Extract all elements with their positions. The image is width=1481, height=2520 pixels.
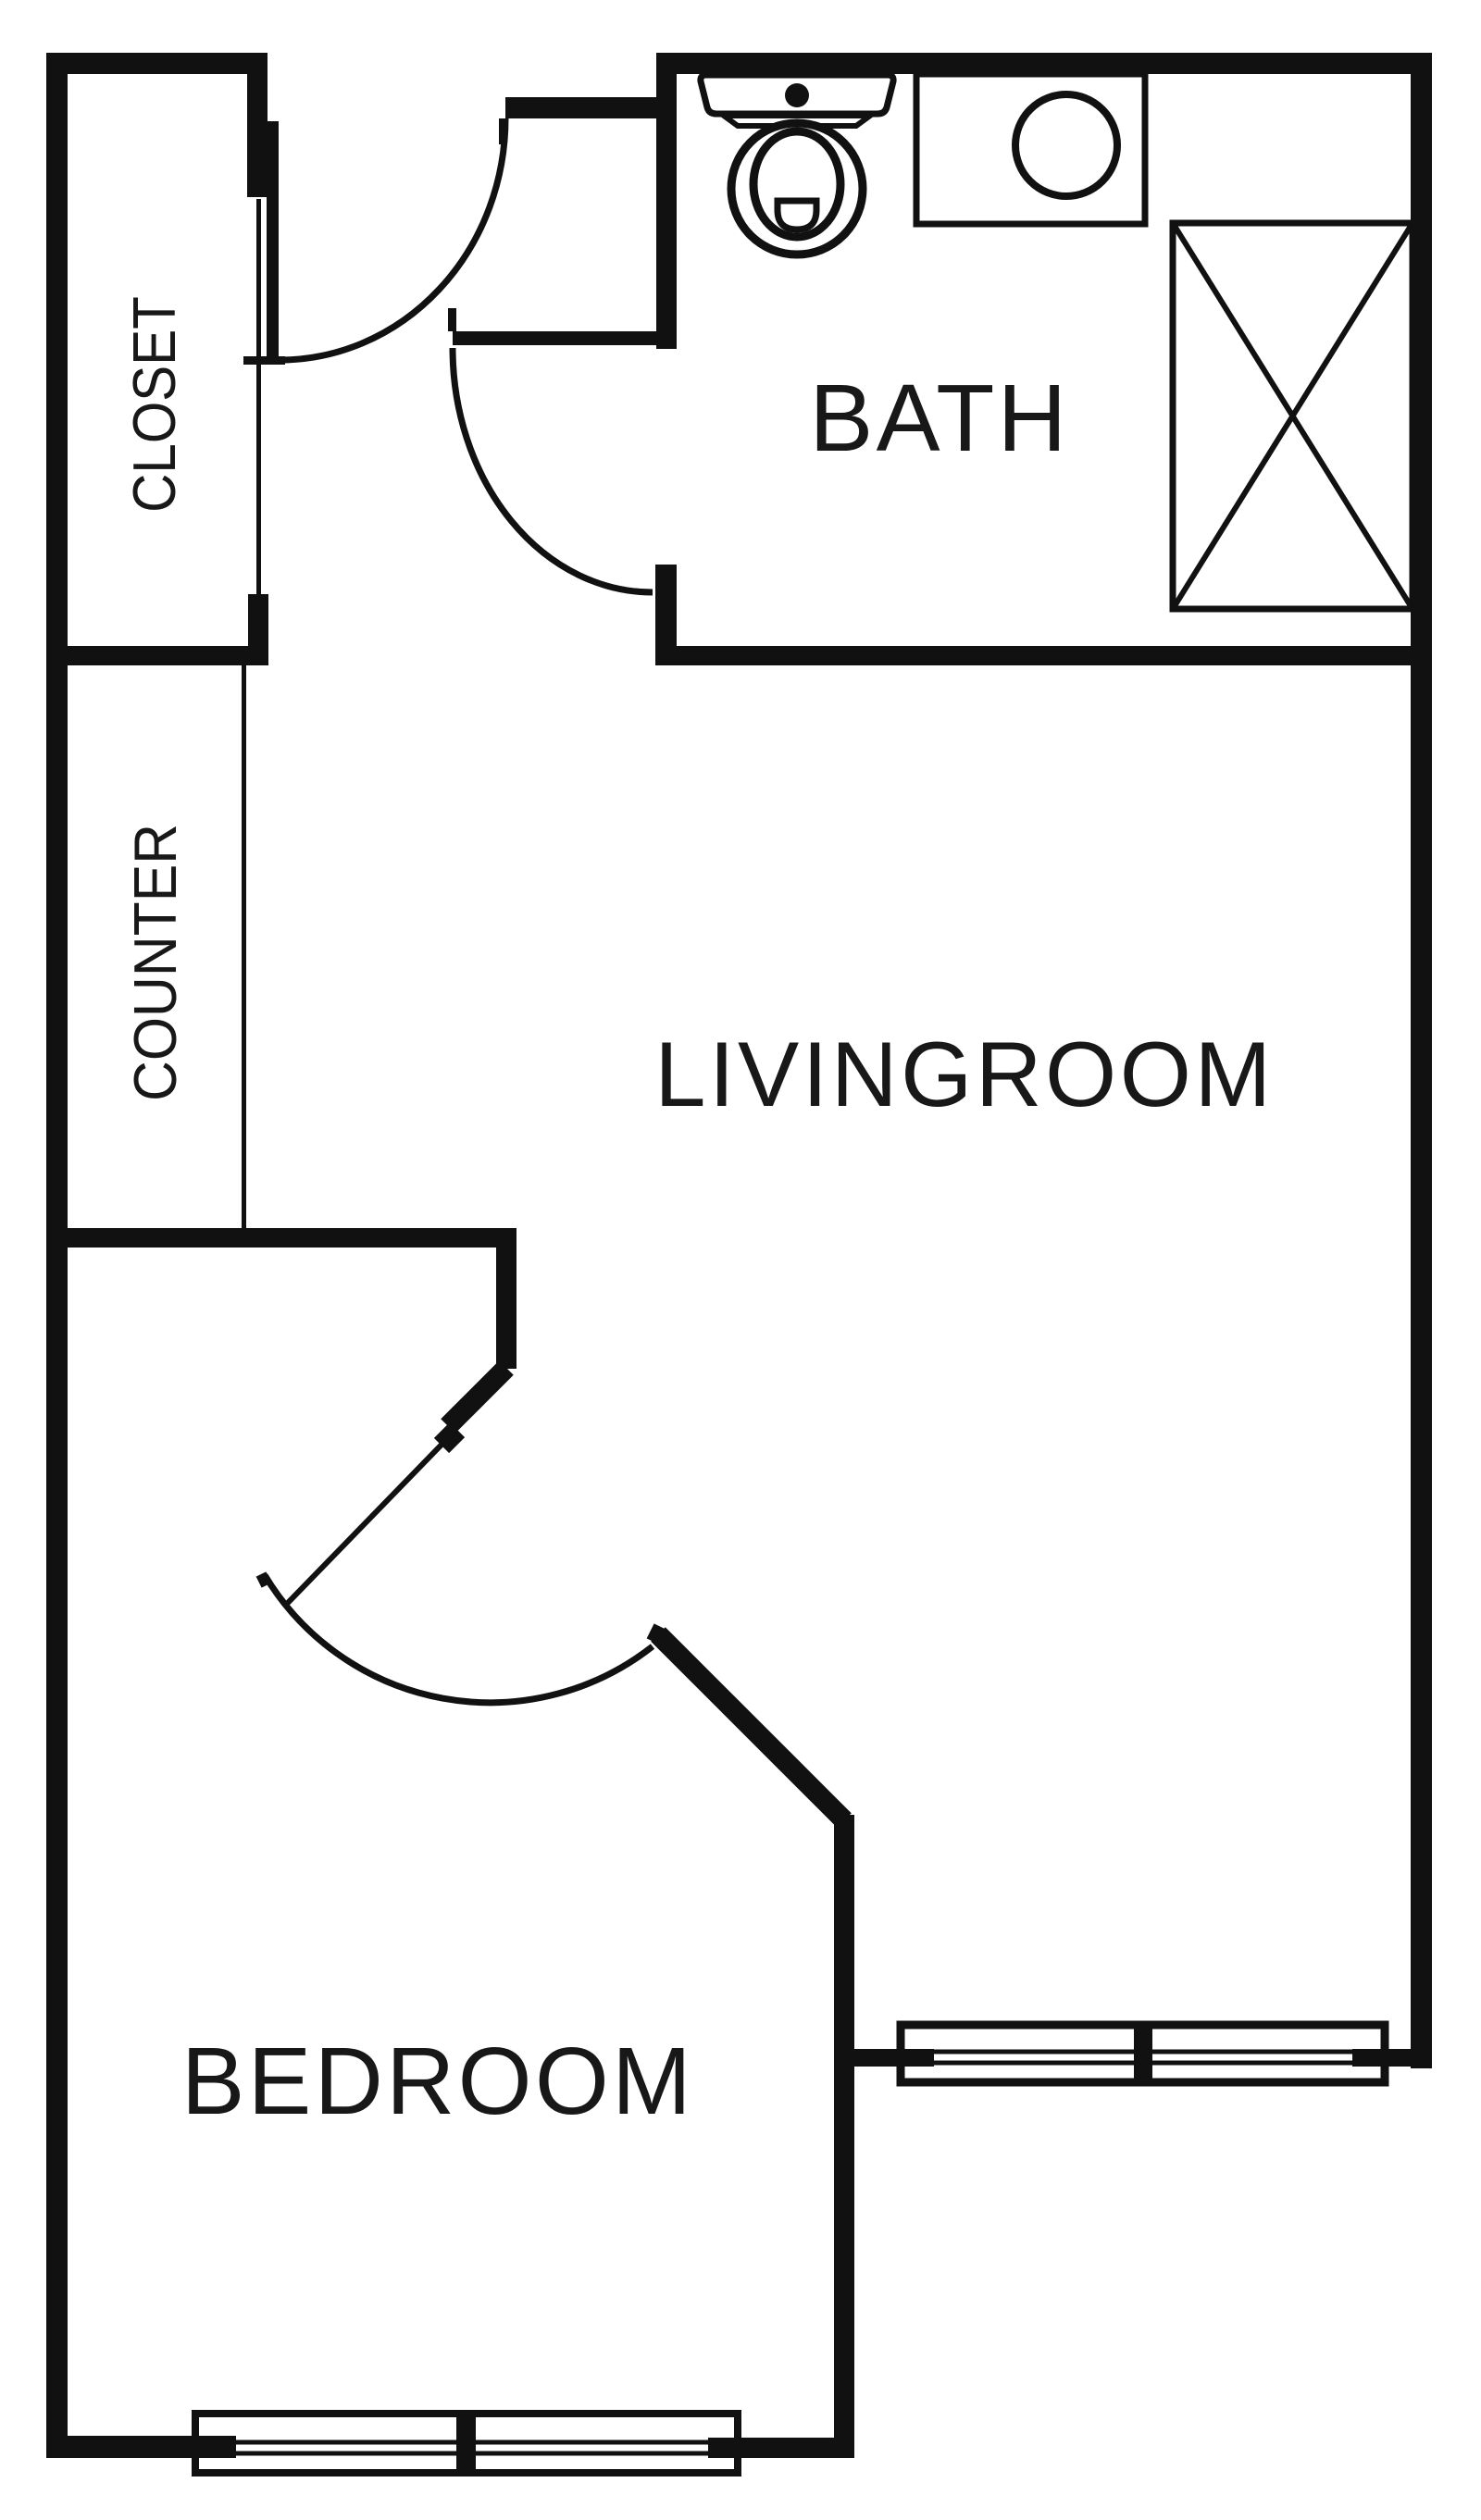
svg-text:BATH: BATH [809,364,1069,471]
svg-text:BEDROOM: BEDROOM [181,2028,694,2134]
svg-text:CLOSET: CLOSET [121,296,189,513]
svg-text:COUNTER: COUNTER [122,824,189,1101]
svg-text:LIVINGROOM: LIVINGROOM [654,1024,1274,1126]
